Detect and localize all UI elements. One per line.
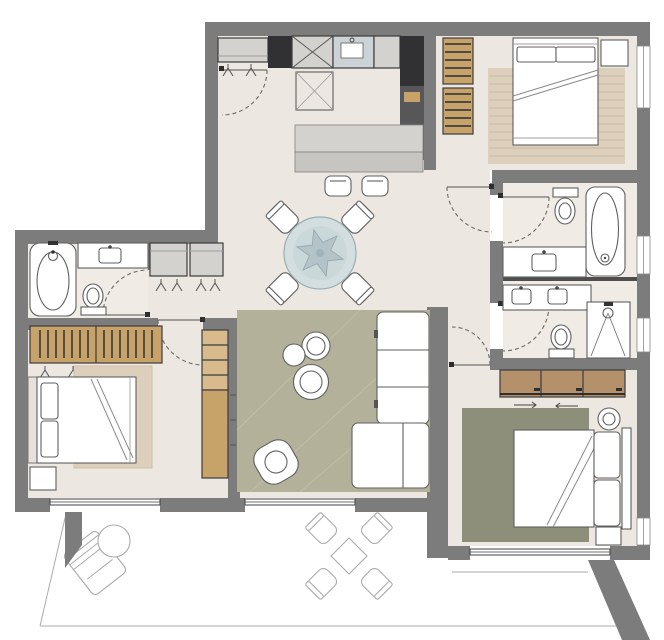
glazing-living	[245, 499, 355, 505]
wall-kitchen-bedroom2	[424, 36, 436, 170]
wall-top	[205, 22, 650, 36]
entry-bench-closet	[218, 38, 268, 62]
glazing-bedroom1	[50, 499, 160, 505]
pillow	[556, 47, 595, 62]
glazing-master	[470, 549, 610, 555]
built-in-closet	[150, 243, 187, 276]
kitchen-island	[295, 125, 423, 172]
living-area	[237, 310, 430, 492]
tall-dark-column	[400, 36, 424, 86]
wall-bottom-mid	[160, 498, 245, 512]
bedroom2-bed	[513, 38, 598, 145]
wall-master-top	[490, 358, 637, 370]
round-dining-table	[284, 217, 356, 289]
b edroom1-bed	[28, 377, 136, 463]
shower	[587, 302, 630, 358]
wall-master-bottom-a	[448, 546, 470, 560]
wall-master-left	[427, 307, 448, 558]
headboard	[28, 377, 37, 463]
wall-bottom-living	[355, 498, 432, 512]
built-in-closet	[190, 243, 223, 276]
kitchen-counter	[374, 36, 400, 68]
wall-right-1	[637, 22, 650, 46]
wall-bedroom2-bottom	[492, 170, 637, 183]
pillow	[41, 383, 58, 419]
terrace-chair	[305, 512, 339, 546]
terrace-chair	[359, 566, 393, 600]
floor-plan	[0, 0, 664, 640]
double-vanity	[503, 285, 591, 310]
pillow	[41, 421, 58, 457]
terrace-chair	[305, 566, 339, 600]
floor-plan-canvas	[0, 0, 664, 640]
bedroom2-nightstand	[601, 40, 628, 66]
pillow	[594, 480, 620, 526]
pillow	[517, 47, 556, 62]
terrace-dining-set	[305, 512, 393, 600]
terrace-table	[331, 538, 367, 574]
vanity-sink	[503, 247, 586, 277]
wall-master-bottom-b	[610, 546, 637, 560]
wall-bath-divider	[503, 277, 637, 281]
terrace-edge-left	[40, 514, 66, 626]
wall-terrace-diagonal-right	[588, 560, 650, 640]
bar-stool	[325, 176, 351, 196]
tall-oven-cabinet	[292, 36, 333, 68]
master-dresser	[500, 370, 625, 397]
terrace-chair	[359, 512, 393, 546]
headboard	[622, 428, 631, 529]
wall-right-4	[637, 352, 650, 518]
bar-stool	[362, 176, 388, 196]
pillow	[594, 432, 620, 478]
wall-bottom-left-stub	[15, 498, 50, 512]
refrigerator-column	[268, 36, 292, 68]
wall-left-top	[15, 230, 218, 244]
vanity-sink	[78, 243, 148, 268]
master-bed	[514, 428, 631, 529]
terrace-round-table	[98, 525, 130, 557]
wall-right-5	[637, 545, 650, 560]
wall-bath-west-b	[490, 241, 503, 303]
wall-right-2	[637, 108, 650, 236]
bathtub	[586, 187, 625, 276]
master-nightstand	[596, 527, 621, 545]
wall-right-3	[637, 274, 650, 318]
bedroom1-nightstand	[30, 467, 56, 490]
bathtub	[30, 241, 76, 316]
wall-left	[15, 230, 28, 512]
wall-upper-left	[205, 22, 218, 244]
round-stool	[598, 408, 620, 430]
kitchen-sink-unit	[333, 36, 374, 68]
